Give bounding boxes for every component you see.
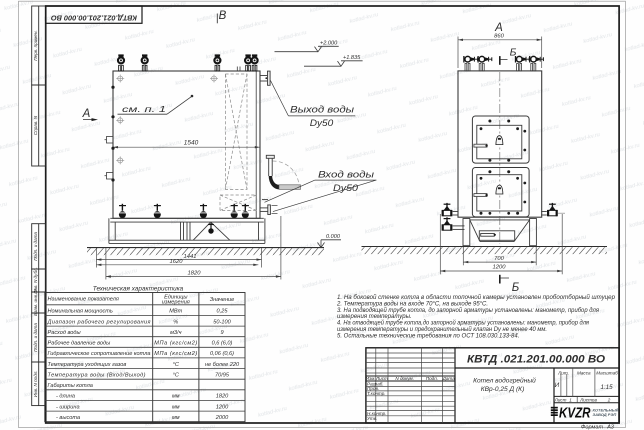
- svg-text:1820: 1820: [188, 270, 202, 276]
- svg-text:ЗАВОД РЭП: ЗАВОД РЭП: [593, 412, 617, 417]
- svg-text:мм: мм: [172, 415, 180, 421]
- svg-text:1:15: 1:15: [600, 384, 613, 391]
- svg-text:Взам. инв. N: Взам. инв. N: [33, 288, 38, 315]
- svg-text:%: %: [173, 319, 178, 325]
- svg-text:Расход воды: Расход воды: [48, 330, 81, 336]
- svg-text:5. Остальные технические треб: 5. Остальные технические требования по О…: [337, 333, 519, 339]
- svg-text:Формат: Формат: [581, 425, 604, 430]
- svg-text:1540: 1540: [184, 140, 199, 147]
- svg-text:Котел водогрейный: Котел водогрейный: [473, 377, 536, 385]
- svg-text:МПа (кгс/см2): МПа (кгс/см2): [154, 341, 197, 347]
- svg-text:1620: 1620: [170, 259, 184, 265]
- svg-text:0,6 (6,0): 0,6 (6,0): [212, 341, 233, 347]
- svg-text:2: 2: [607, 398, 611, 403]
- svg-text:м3/ч: м3/ч: [170, 330, 181, 336]
- svg-text:Температура воды (Вход/Выход): Температура воды (Вход/Выход): [48, 372, 146, 378]
- svg-text:Подп. и дата: Подп. и дата: [33, 323, 38, 352]
- svg-text:Листов: Листов: [579, 398, 597, 403]
- svg-text:Т.контр.: Т.контр.: [367, 391, 386, 396]
- svg-text:N докум.: N докум.: [395, 376, 414, 381]
- svg-text:измерения: измерения: [162, 300, 190, 306]
- svg-text:°С: °С: [173, 362, 180, 368]
- svg-text:А: А: [494, 22, 503, 34]
- svg-text:Габариты котла: Габариты котла: [48, 383, 93, 389]
- svg-text:+1.835: +1.835: [343, 55, 361, 61]
- svg-text:Значение: Значение: [210, 297, 235, 303]
- svg-text:Температура уходящих газов: Температура уходящих газов: [48, 362, 127, 368]
- svg-text:Наименование показателя: Наименование показателя: [48, 297, 119, 303]
- svg-text:КВТД .021.201.00.000 ВО: КВТД .021.201.00.000 ВО: [467, 353, 605, 365]
- svg-text:70/95: 70/95: [215, 372, 230, 378]
- svg-text:Рабочее давление воды: Рабочее давление воды: [48, 341, 111, 347]
- svg-text:А: А: [82, 108, 91, 120]
- svg-text:860: 860: [494, 33, 504, 39]
- svg-text:Перв. примен.: Перв. примен.: [33, 30, 38, 61]
- svg-text:2. Температура воды на входе: 2. Температура воды на входе 70°С, на вы…: [336, 302, 488, 308]
- svg-text:И: И: [555, 382, 560, 389]
- svg-text:Подп.: Подп.: [426, 376, 438, 381]
- svg-text:Выход воды: Выход воды: [290, 105, 354, 115]
- svg-text:+2.000: +2.000: [320, 41, 338, 47]
- svg-text:700: 700: [494, 256, 504, 262]
- svg-text:Инв. N подл.: Инв. N подл.: [33, 370, 38, 397]
- svg-text:Лист: Лист: [375, 376, 388, 381]
- svg-text:Б: Б: [512, 282, 520, 294]
- svg-text:Лист: Лист: [554, 398, 567, 403]
- svg-text:Dy50: Dy50: [310, 118, 334, 128]
- svg-text:не более 220: не более 220: [205, 362, 240, 368]
- svg-text:измерения температуры и предох: измерения температуры и предохранительны…: [337, 326, 547, 333]
- svg-text:Техническая характеристика: Техническая характеристика: [93, 286, 184, 293]
- svg-text:КВр-0,25 Д (К): КВр-0,25 Д (К): [481, 386, 525, 393]
- svg-text:мм: мм: [172, 394, 180, 400]
- svg-text:Диапазон рабочего регулировани: Диапазон рабочего регулирования: [47, 319, 151, 325]
- svg-text:1820: 1820: [216, 394, 229, 400]
- svg-text:см. п. 1: см. п. 1: [122, 104, 166, 114]
- svg-text:Масса: Масса: [577, 371, 591, 376]
- svg-text:1: 1: [569, 398, 572, 403]
- svg-text:мм: мм: [172, 404, 180, 410]
- svg-text:КВТД.021.201.00.000 ВО: КВТД.021.201.00.000 ВО: [51, 13, 137, 22]
- svg-text:0,25: 0,25: [217, 309, 229, 315]
- svg-text:Дата: Дата: [442, 376, 456, 381]
- svg-text:А3: А3: [606, 425, 615, 430]
- svg-text:KVZR: KVZR: [559, 405, 591, 421]
- svg-text:Dy50: Dy50: [333, 183, 359, 193]
- svg-text:- ширина: - ширина: [56, 404, 80, 410]
- svg-text:Номинальная мощность: Номинальная мощность: [48, 309, 113, 315]
- svg-text:измерения температуры.: измерения температуры.: [337, 314, 412, 320]
- svg-text:50-100: 50-100: [213, 319, 231, 325]
- svg-text:Справ. N: Справ. N: [33, 115, 38, 135]
- svg-text:1. На боковой стенке котла в: 1. На боковой стенке котла в области топ…: [337, 294, 616, 301]
- svg-text:9: 9: [220, 330, 223, 336]
- svg-text:0,06 (0,6): 0,06 (0,6): [210, 351, 234, 357]
- svg-text:Подп. и дата: Подп. и дата: [33, 232, 38, 261]
- svg-text:МВт: МВт: [169, 309, 182, 315]
- svg-text:1441: 1441: [184, 254, 197, 260]
- svg-text:Масштаб: Масштаб: [596, 371, 618, 376]
- svg-text:0.000: 0.000: [326, 234, 341, 240]
- svg-text:- высота: - высота: [56, 415, 80, 421]
- svg-text:4. На отводящей трубе котла,д: 4. На отводящей трубе котла,до запорной …: [337, 319, 590, 326]
- svg-text:Изм.: Изм.: [366, 376, 376, 381]
- svg-text:2000: 2000: [215, 415, 229, 421]
- svg-text:1200: 1200: [216, 404, 229, 410]
- svg-text:Утв.: Утв.: [367, 416, 377, 421]
- svg-text:Гидравлическое сопротивление к: Гидравлическое сопротивление котла: [48, 351, 151, 357]
- svg-text:°С: °С: [173, 372, 180, 378]
- svg-text:- длина: - длина: [56, 394, 75, 400]
- svg-text:В: В: [219, 10, 227, 22]
- svg-text:Вход воды: Вход воды: [318, 170, 374, 180]
- svg-text:МПа (кгс/см2): МПа (кгс/см2): [154, 351, 197, 357]
- svg-text:1200: 1200: [493, 265, 507, 271]
- svg-text:Лит.: Лит.: [557, 371, 569, 376]
